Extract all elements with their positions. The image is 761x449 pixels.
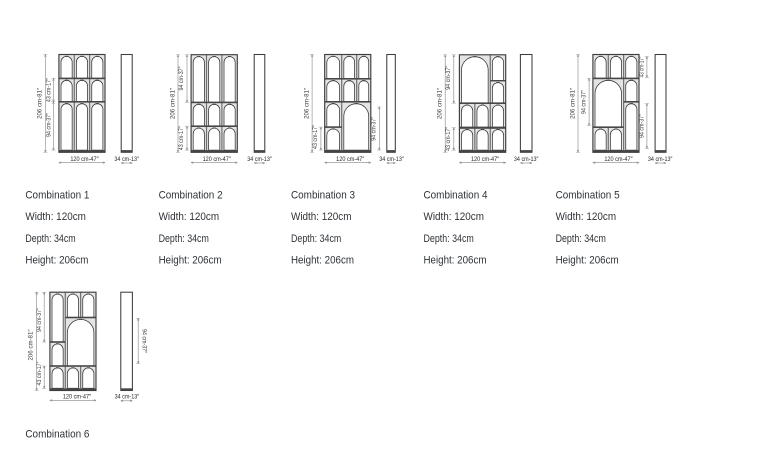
svg-text:34 cm-13″: 34 cm-13″ (379, 156, 404, 163)
svg-text:Combination 4: Combination 4 (424, 190, 488, 202)
svg-text:120 cm-47″: 120 cm-47″ (203, 156, 232, 163)
svg-text:206 cm-81″: 206 cm-81″ (570, 87, 576, 119)
svg-text:120 cm-47″: 120 cm-47″ (604, 156, 633, 163)
svg-text:34 cm-13″: 34 cm-13″ (247, 156, 272, 163)
svg-text:94 cm-37″: 94 cm-37″ (179, 66, 185, 91)
svg-text:Depth: 34cm: Depth: 34cm (159, 233, 209, 245)
svg-text:120 cm-47″: 120 cm-47″ (471, 156, 500, 163)
svg-text:Width: 120cm: Width: 120cm (424, 211, 485, 223)
svg-text:Height: 206cm: Height: 206cm (159, 255, 222, 267)
svg-text:Height: 206cm: Height: 206cm (424, 255, 487, 267)
svg-text:Height: 206cm: Height: 206cm (25, 255, 88, 267)
svg-text:43 cm-17″: 43 cm-17″ (37, 361, 43, 386)
svg-text:34 cm-13″: 34 cm-13″ (114, 156, 139, 163)
svg-text:94 cm-37″: 94 cm-37″ (639, 113, 645, 138)
svg-text:Combination 2: Combination 2 (159, 190, 223, 202)
svg-text:206 cm-81″: 206 cm-81″ (38, 87, 44, 119)
svg-text:34 cm-13″: 34 cm-13″ (514, 156, 539, 163)
svg-text:206 cm-81″: 206 cm-81″ (29, 329, 35, 361)
svg-text:43 cm-17″: 43 cm-17″ (313, 124, 319, 149)
svg-text:Width: 120cm: Width: 120cm (291, 211, 352, 223)
svg-text:120 cm-47″: 120 cm-47″ (70, 156, 99, 163)
svg-text:Combination 3: Combination 3 (291, 190, 355, 202)
svg-text:94 cm-37″: 94 cm-37″ (47, 112, 53, 137)
svg-text:Width: 120cm: Width: 120cm (25, 211, 86, 223)
svg-text:94 cm-37″: 94 cm-37″ (372, 116, 378, 141)
svg-text:Depth: 34cm: Depth: 34cm (556, 233, 606, 245)
svg-text:Height: 206cm: Height: 206cm (291, 255, 354, 267)
svg-text:94 cm-37″: 94 cm-37″ (581, 89, 587, 114)
svg-text:120 cm-47″: 120 cm-47″ (63, 394, 92, 401)
svg-text:206 cm-81″: 206 cm-81″ (304, 87, 310, 119)
svg-text:34 cm-13″: 34 cm-13″ (115, 394, 140, 401)
svg-text:43 cm-17″: 43 cm-17″ (179, 125, 185, 150)
svg-text:Depth: 34cm: Depth: 34cm (25, 233, 75, 245)
svg-text:94 cm-37″: 94 cm-37″ (446, 65, 452, 90)
svg-text:Width: 120cm: Width: 120cm (556, 211, 617, 223)
svg-text:94 cm-37″: 94 cm-37″ (37, 307, 43, 332)
svg-text:43 cm-17″: 43 cm-17″ (639, 56, 645, 78)
svg-text:206 cm-81″: 206 cm-81″ (170, 87, 176, 119)
svg-text:Combination 1: Combination 1 (25, 190, 89, 202)
svg-text:43 cm-17″: 43 cm-17″ (47, 77, 53, 102)
svg-text:Combination 6: Combination 6 (25, 429, 89, 441)
svg-text:94 cm-37″: 94 cm-37″ (141, 329, 147, 354)
svg-text:120 cm-47″: 120 cm-47″ (336, 156, 365, 163)
svg-text:Width: 120cm: Width: 120cm (159, 211, 220, 223)
svg-text:Depth: 34cm: Depth: 34cm (424, 233, 474, 245)
svg-text:Height: 206cm: Height: 206cm (556, 255, 619, 267)
svg-text:206 cm-81″: 206 cm-81″ (438, 87, 444, 119)
svg-text:Depth: 34cm: Depth: 34cm (291, 233, 341, 245)
svg-text:Combination 5: Combination 5 (556, 190, 620, 202)
svg-text:34 cm-13″: 34 cm-13″ (648, 156, 673, 163)
svg-text:43 cm-17″: 43 cm-17″ (446, 126, 452, 151)
